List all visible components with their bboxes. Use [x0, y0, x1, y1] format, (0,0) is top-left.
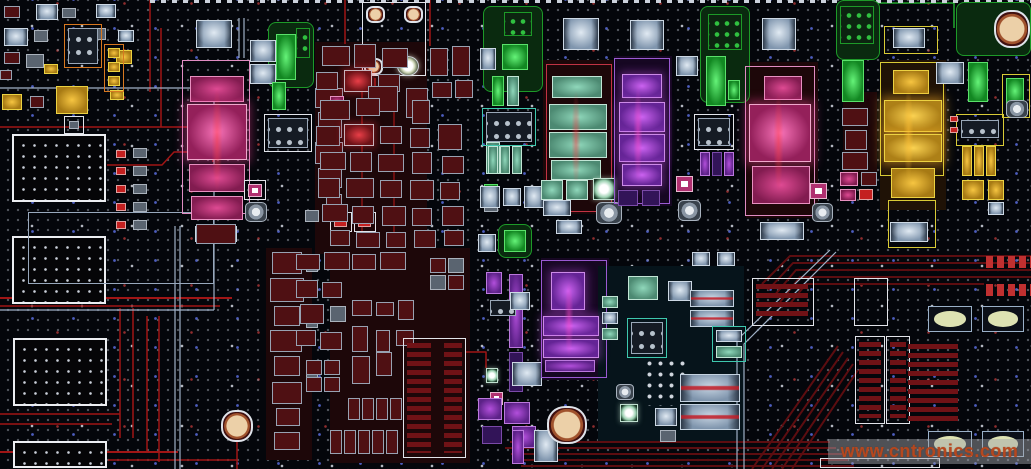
pcb-component [724, 152, 734, 176]
pcb-component [412, 100, 430, 124]
pcb-component [274, 432, 300, 450]
pcb-component [950, 127, 958, 133]
pcb-component [706, 56, 726, 106]
pcb-component [318, 178, 340, 198]
highlight-glow [772, 68, 785, 216]
pcb-component [133, 148, 147, 158]
pcb-component [950, 116, 958, 122]
pcb-component [543, 200, 571, 216]
pcb-component [376, 398, 388, 420]
pcb-component [108, 62, 120, 72]
pcb-component [4, 28, 28, 46]
pcb-component [352, 254, 376, 270]
pcb-component [480, 48, 496, 70]
pcb-component [346, 178, 374, 198]
pcb-component [320, 100, 350, 120]
round-component [1006, 100, 1028, 118]
pcb-component [452, 46, 470, 76]
pcb-component [486, 368, 498, 383]
pcb-component [810, 183, 827, 199]
pcb-component [510, 292, 530, 310]
pad-grid [504, 12, 532, 36]
pcb-component [306, 360, 322, 375]
pcb-component [482, 426, 502, 444]
pad-row [986, 256, 1031, 268]
pcb-component [376, 330, 390, 352]
pcb-component [512, 430, 524, 464]
pcb-component [250, 64, 276, 84]
pcb-component [322, 46, 350, 66]
pcb-component [390, 398, 402, 420]
pcb-component [620, 404, 638, 422]
pcb-component [324, 360, 340, 375]
pcb-component [712, 152, 722, 176]
ic-footprint [631, 322, 663, 354]
pcb-component [108, 48, 120, 58]
pcb-component [512, 146, 522, 174]
pcb-component [352, 300, 372, 316]
pcb-component [762, 18, 796, 50]
connector-footprint [13, 441, 107, 468]
pcb-component [248, 184, 262, 197]
pcb-component [507, 76, 519, 106]
pcb-component [274, 356, 300, 376]
pcb-component [412, 208, 432, 226]
pcb-component [628, 276, 658, 300]
pcb-component [602, 296, 618, 308]
pcb-component [630, 20, 664, 50]
pcb-component [760, 222, 804, 240]
pad-row [407, 343, 431, 453]
pcb-component [296, 254, 320, 270]
pcb-component [330, 230, 350, 246]
pcb-component [116, 167, 126, 175]
pcb-component [430, 275, 446, 290]
pcb-component [618, 190, 638, 206]
pcb-component [692, 252, 710, 266]
pad-grid [708, 14, 742, 50]
pcb-component [116, 203, 126, 211]
pcb-component [936, 62, 964, 84]
pcb-component [322, 282, 342, 298]
mounting-hole-pad [994, 10, 1030, 48]
pcb-component [380, 126, 402, 144]
pcb-component [430, 258, 446, 273]
pcb-component [354, 44, 376, 68]
pcb-component [0, 70, 12, 80]
pcb-component [26, 54, 44, 68]
pcb-component [108, 76, 120, 86]
pcb-component [56, 86, 88, 114]
pcb-component [642, 190, 660, 206]
watermark-text: www.cntronics.com [841, 441, 1019, 462]
pcb-component [410, 180, 434, 200]
pcb-component [859, 189, 873, 200]
ic-footprint [486, 112, 532, 142]
highlight-glow [563, 262, 575, 376]
pcb-component [700, 152, 710, 176]
pcb-component [330, 306, 346, 322]
pcb-component [512, 362, 542, 386]
round-component [678, 200, 701, 221]
pcb-component [386, 232, 406, 248]
pcb-component [305, 210, 319, 222]
pcb-component [118, 30, 134, 42]
pcb-component [680, 404, 740, 430]
pcb-component [352, 356, 370, 384]
pcb-component [116, 185, 126, 193]
component-layer [0, 0, 1031, 469]
round-component [812, 203, 833, 222]
pcb-component [378, 154, 404, 172]
pad-grid [296, 28, 310, 58]
pcb-component [133, 166, 147, 176]
round-component [616, 384, 634, 400]
pcb-canvas[interactable]: www.cntronics.com [0, 0, 1031, 469]
pcb-component [306, 377, 322, 392]
ic-footprint [268, 118, 308, 148]
pcb-component [728, 80, 740, 100]
pcb-component [2, 94, 22, 110]
pcb-component [602, 328, 618, 340]
pcb-component [676, 56, 698, 76]
pcb-component [716, 330, 742, 342]
pcb-component [356, 98, 380, 116]
pcb-component [676, 176, 693, 192]
pcb-component [442, 206, 464, 226]
pcb-component [986, 146, 996, 176]
pcb-component [386, 430, 398, 454]
pcb-component [356, 232, 380, 248]
pcb-component [350, 152, 372, 172]
pcb-component [196, 20, 232, 48]
pcb-component [448, 258, 464, 273]
pcb-component [34, 30, 48, 42]
pcb-component [690, 310, 734, 327]
mounting-hole-pad [547, 406, 587, 444]
pcb-component [348, 398, 360, 420]
pcb-component [320, 152, 346, 170]
pcb-component [438, 124, 462, 150]
pcb-component [316, 126, 340, 146]
pcb-component [504, 230, 526, 252]
mounting-hole-pad [221, 410, 253, 442]
pcb-component [478, 398, 502, 420]
pcb-component [196, 224, 236, 244]
ruler-ticks [150, 0, 1031, 3]
highlight-glow [902, 64, 915, 204]
pcb-component [352, 326, 368, 352]
pcb-component [344, 124, 374, 146]
pcb-component [296, 330, 316, 346]
pcb-component [272, 382, 302, 404]
ic-footprint [961, 120, 999, 138]
pcb-component [69, 121, 79, 129]
pcb-component [133, 202, 147, 212]
pcb-component [840, 189, 856, 201]
pcb-component [372, 430, 384, 454]
pcb-component [276, 408, 300, 426]
pcb-component [4, 6, 20, 18]
pcb-component [492, 76, 504, 106]
pcb-component [300, 304, 324, 324]
pcb-component [840, 172, 858, 186]
round-component [245, 202, 267, 222]
pcb-component [96, 4, 116, 18]
pcb-component [962, 180, 984, 200]
ic-footprint [68, 28, 98, 64]
pcb-component [133, 184, 147, 194]
smd-pad-oval [982, 306, 1024, 332]
pcb-component [556, 220, 582, 234]
pcb-component [320, 332, 342, 350]
pcb-component [842, 60, 864, 102]
pcb-component [444, 230, 464, 246]
pcb-component [272, 82, 286, 110]
connector-footprint [13, 338, 107, 406]
pcb-component [274, 306, 300, 326]
pad-row [908, 344, 958, 424]
pcb-component [440, 182, 460, 200]
pcb-component [430, 48, 448, 76]
pcb-component [893, 28, 925, 48]
pcb-component [382, 206, 406, 226]
pcb-component [432, 82, 452, 98]
pcb-component [382, 48, 408, 68]
pcb-component [30, 96, 44, 108]
pcb-component [500, 146, 510, 174]
pcb-component [116, 150, 126, 158]
pcb-component [376, 302, 394, 316]
pcb-component [380, 252, 406, 270]
pcb-component [448, 275, 464, 290]
pcb-component [842, 108, 868, 126]
pcb-component [655, 408, 677, 426]
pcb-component [602, 312, 618, 324]
pcb-component [330, 430, 342, 454]
pcb-component [563, 18, 599, 50]
pcb-component [480, 186, 500, 208]
pcb-component [414, 230, 436, 248]
pcb-component [455, 80, 473, 98]
pcb-component [502, 44, 528, 70]
pcb-component [541, 180, 563, 200]
pcb-component [988, 180, 1004, 200]
pcb-component [4, 52, 20, 64]
highlight-glow [632, 60, 644, 208]
pcb-component [36, 4, 58, 20]
pcb-component [717, 252, 735, 266]
pcb-component [566, 180, 588, 200]
pcb-component [322, 204, 348, 222]
pcb-component [680, 374, 740, 402]
pcb-component [276, 34, 296, 80]
pcb-component [478, 234, 496, 252]
connector-footprint [12, 134, 106, 202]
pcb-component [854, 278, 888, 326]
pcb-component [845, 130, 867, 150]
pcb-component [296, 280, 318, 298]
pad-row [756, 284, 808, 320]
pcb-component [362, 398, 374, 420]
pcb-component [376, 352, 392, 376]
pcb-component [890, 222, 928, 242]
pcb-component [716, 346, 742, 358]
pad-grid [840, 6, 874, 44]
pcb-component [668, 281, 692, 301]
pcb-component [660, 430, 676, 442]
pcb-component [442, 156, 464, 174]
pcb-component [503, 188, 521, 206]
pcb-component [486, 272, 502, 294]
pcb-component [324, 377, 340, 392]
pcb-component [988, 202, 1004, 215]
pcb-component [968, 62, 988, 102]
pcb-component [593, 178, 615, 200]
pcb-component [44, 64, 58, 74]
pad-row [986, 284, 1031, 296]
pcb-component [380, 180, 402, 198]
pad-row [859, 342, 881, 418]
pcb-component [344, 430, 356, 454]
ic-footprint [698, 118, 730, 146]
highlight-glow [210, 62, 224, 218]
pcb-component [358, 430, 370, 454]
pcb-component [842, 152, 868, 170]
pcb-component [398, 300, 414, 320]
pcb-component [412, 152, 432, 174]
pcb-component [62, 8, 76, 18]
pcb-component [504, 402, 530, 424]
pcb-component [690, 290, 734, 307]
pcb-component [324, 252, 350, 270]
pcb-component [974, 146, 984, 176]
pcb-component [861, 172, 877, 186]
smd-pad-oval [928, 306, 972, 332]
pcb-component [488, 146, 498, 174]
pcb-component [28, 212, 214, 284]
pad-row [444, 343, 462, 453]
mounting-hole-pad [404, 6, 423, 23]
watermark: www.cntronics.com [828, 439, 1031, 464]
pad-row [890, 342, 906, 418]
mounting-hole-pad [366, 6, 385, 23]
pcb-component [250, 40, 276, 62]
pcb-component [316, 72, 338, 90]
pcb-component [410, 128, 430, 148]
pcb-component [962, 146, 972, 176]
pcb-component [352, 206, 374, 224]
